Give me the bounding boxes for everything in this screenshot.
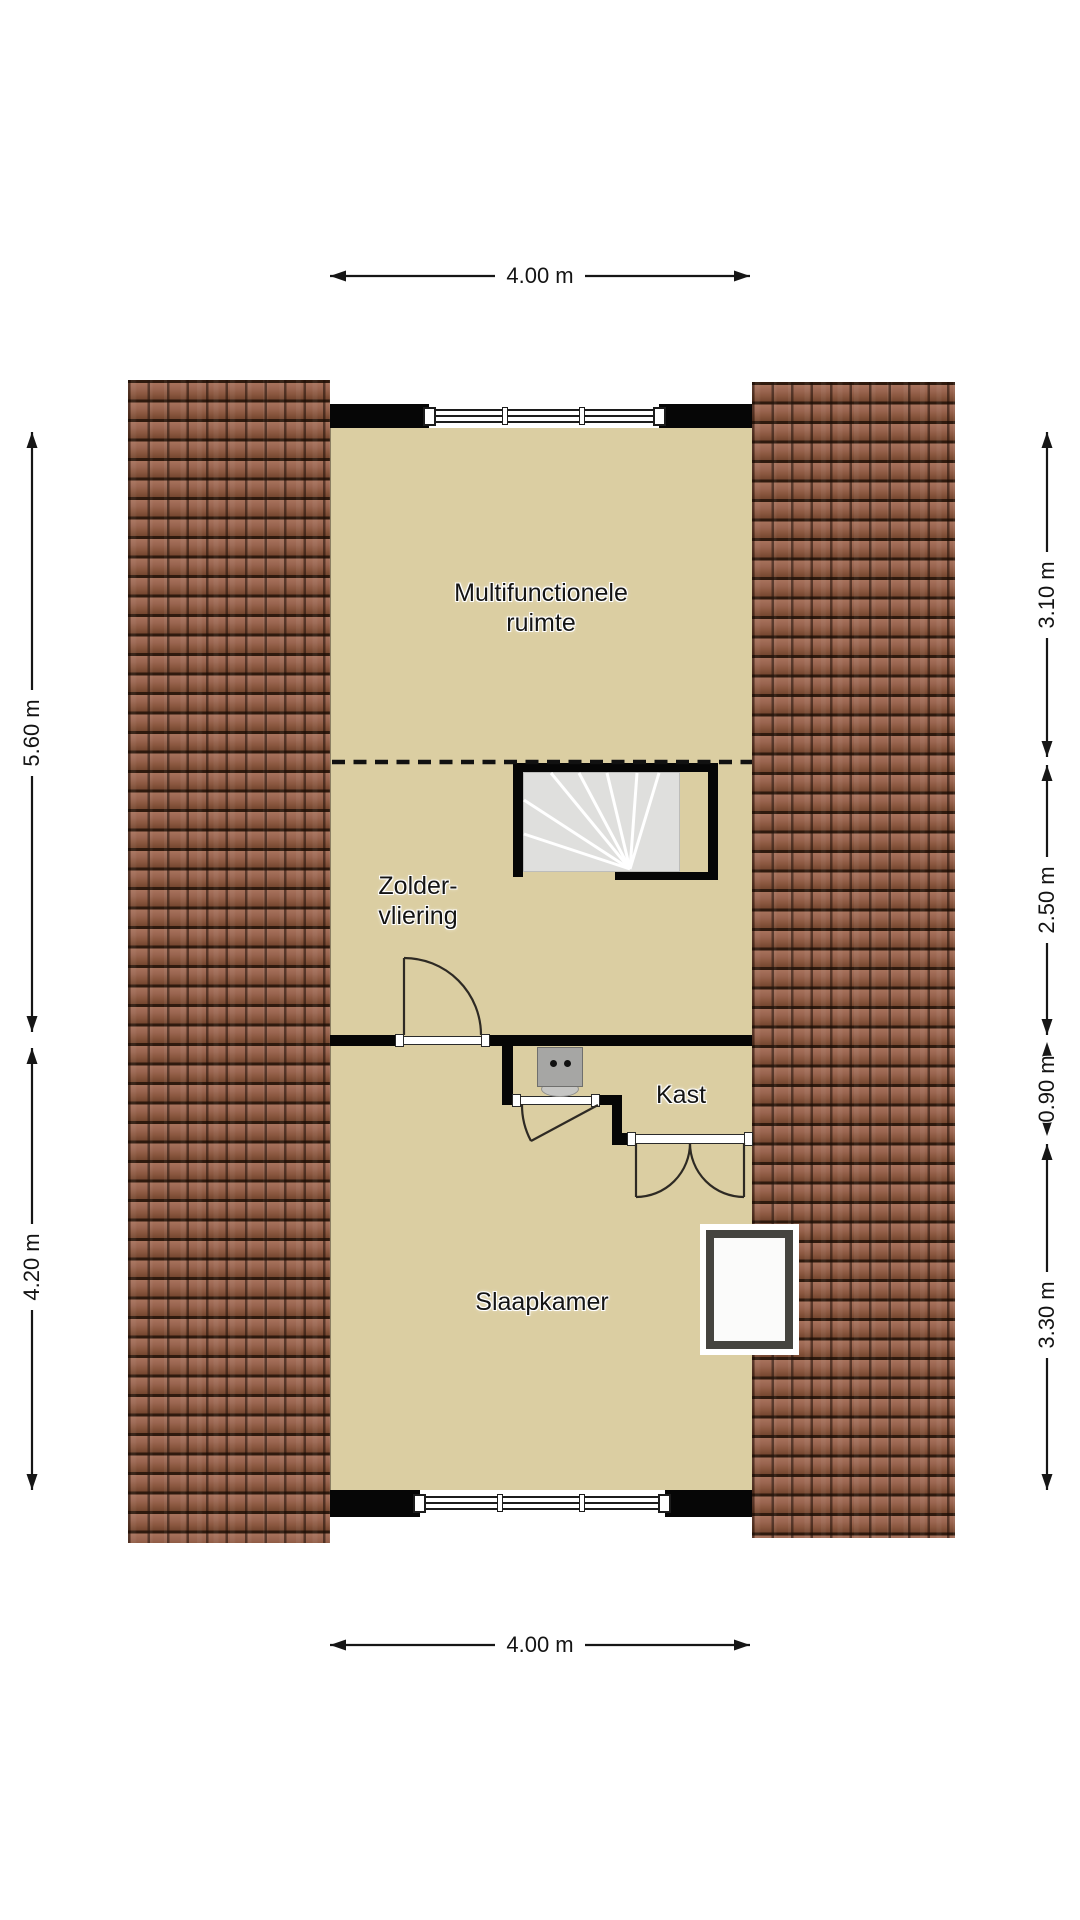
door-slaapkamer: [522, 1104, 598, 1141]
dim-label-bottom: 4.00 m: [506, 1632, 573, 1658]
label-multifunctionele-line1: Multifunctionele: [454, 578, 628, 608]
dim-label-right-bottom: 3.30 m: [1034, 1281, 1060, 1348]
label-kast: Kast: [656, 1080, 706, 1110]
dim-label-left-lower: 4.20 m: [19, 1233, 45, 1300]
label-multifunctionele-line2: ruimte: [454, 608, 628, 638]
label-zolder-line1: Zolder-: [378, 871, 457, 901]
dim-label-top: 4.00 m: [506, 263, 573, 289]
label-zolder-vliering: Zolder- vliering: [378, 871, 457, 931]
stair-treads: [524, 773, 659, 869]
label-zolder-line2: vliering: [378, 901, 457, 931]
label-multifunctionele-ruimte: Multifunctionele ruimte: [454, 578, 628, 638]
dim-label-right-small: 0.90 m: [1034, 1055, 1060, 1122]
label-slaapkamer: Slaapkamer: [475, 1287, 608, 1317]
door-zolder: [404, 958, 481, 1035]
dim-label-right-mid: 2.50 m: [1034, 866, 1060, 933]
dim-label-right-top: 3.10 m: [1034, 561, 1060, 628]
dim-label-left-upper: 5.60 m: [19, 699, 45, 766]
floor-plan: Multifunctionele ruimte Zolder- vliering…: [0, 0, 1080, 1920]
door-kast-double: [636, 1143, 744, 1197]
